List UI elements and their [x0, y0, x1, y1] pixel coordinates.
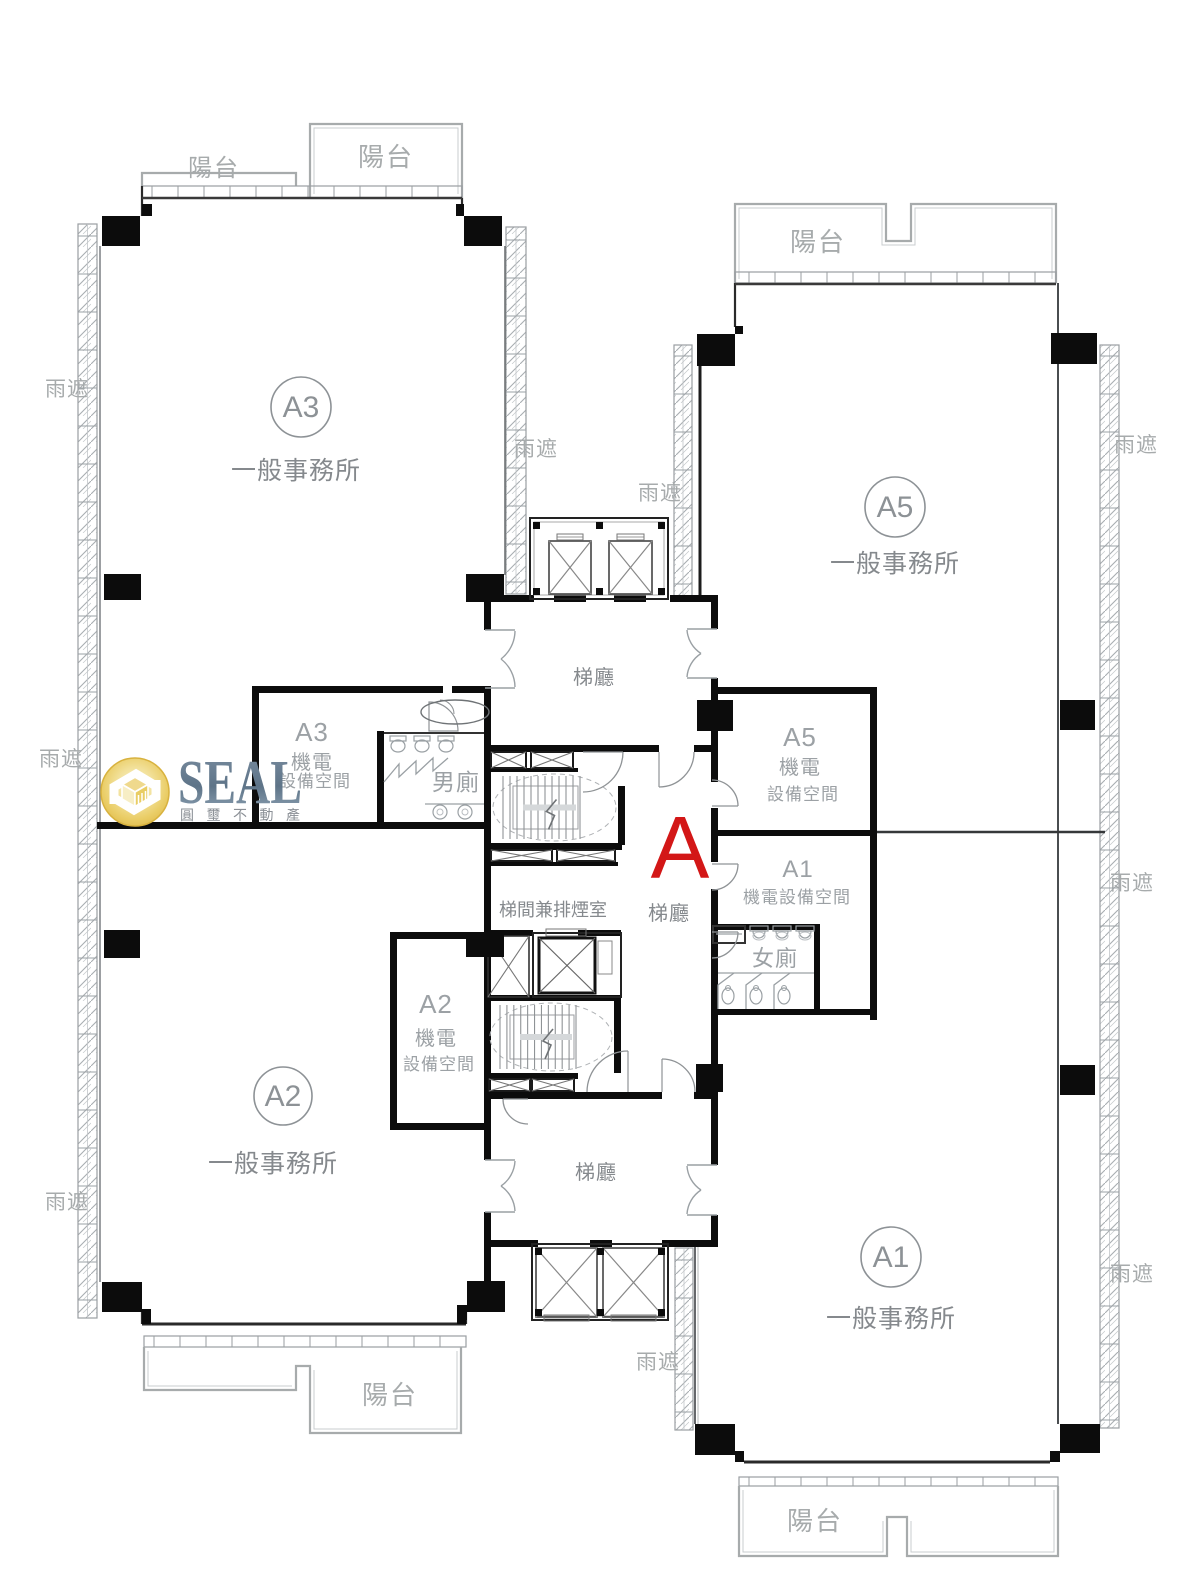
svg-text:雨遮: 雨遮 — [1110, 872, 1154, 895]
svg-text:A3: A3 — [295, 717, 329, 747]
svg-text:雨遮: 雨遮 — [39, 748, 83, 771]
svg-text:機電: 機電 — [779, 756, 821, 779]
svg-text:男廁: 男廁 — [432, 769, 480, 795]
svg-text:機電設備空間: 機電設備空間 — [743, 888, 851, 907]
svg-text:梯廳: 梯廳 — [573, 666, 615, 689]
svg-text:雨遮: 雨遮 — [45, 1191, 89, 1214]
svg-text:陽台: 陽台 — [787, 1506, 843, 1536]
svg-text:陽台: 陽台 — [358, 142, 414, 172]
svg-text:A5: A5 — [877, 491, 914, 524]
svg-text:陽台: 陽台 — [362, 1380, 418, 1410]
svg-text:女廁: 女廁 — [752, 946, 798, 971]
svg-text:陽台: 陽台 — [790, 227, 846, 257]
svg-text:機電: 機電 — [415, 1027, 457, 1050]
svg-text:A1: A1 — [873, 1241, 910, 1274]
svg-text:設備空間: 設備空間 — [767, 785, 839, 804]
svg-text:雨遮: 雨遮 — [45, 378, 89, 401]
svg-text:梯廳: 梯廳 — [648, 902, 690, 925]
svg-text:A1: A1 — [782, 856, 813, 883]
svg-text:一般事務所: 一般事務所 — [231, 457, 361, 485]
svg-text:雨遮: 雨遮 — [638, 482, 682, 505]
svg-text:A2: A2 — [265, 1080, 302, 1113]
svg-text:一般事務所: 一般事務所 — [826, 1305, 956, 1333]
svg-text:陽台: 陽台 — [188, 155, 240, 182]
svg-text:梯間兼排煙室: 梯間兼排煙室 — [499, 900, 607, 920]
svg-text:雨遮: 雨遮 — [1114, 434, 1158, 457]
svg-text:A2: A2 — [419, 989, 453, 1019]
svg-text:雨遮: 雨遮 — [1110, 1263, 1154, 1286]
svg-text:雨遮: 雨遮 — [514, 438, 558, 461]
svg-text:設備空間: 設備空間 — [403, 1055, 475, 1074]
svg-text:A3: A3 — [283, 391, 320, 424]
svg-text:A5: A5 — [783, 722, 817, 752]
svg-text:一般事務所: 一般事務所 — [830, 550, 960, 578]
svg-text:梯廳: 梯廳 — [575, 1161, 617, 1184]
svg-text:A: A — [651, 798, 710, 897]
svg-text:一般事務所: 一般事務所 — [208, 1150, 338, 1178]
svg-text:雨遮: 雨遮 — [636, 1351, 680, 1374]
